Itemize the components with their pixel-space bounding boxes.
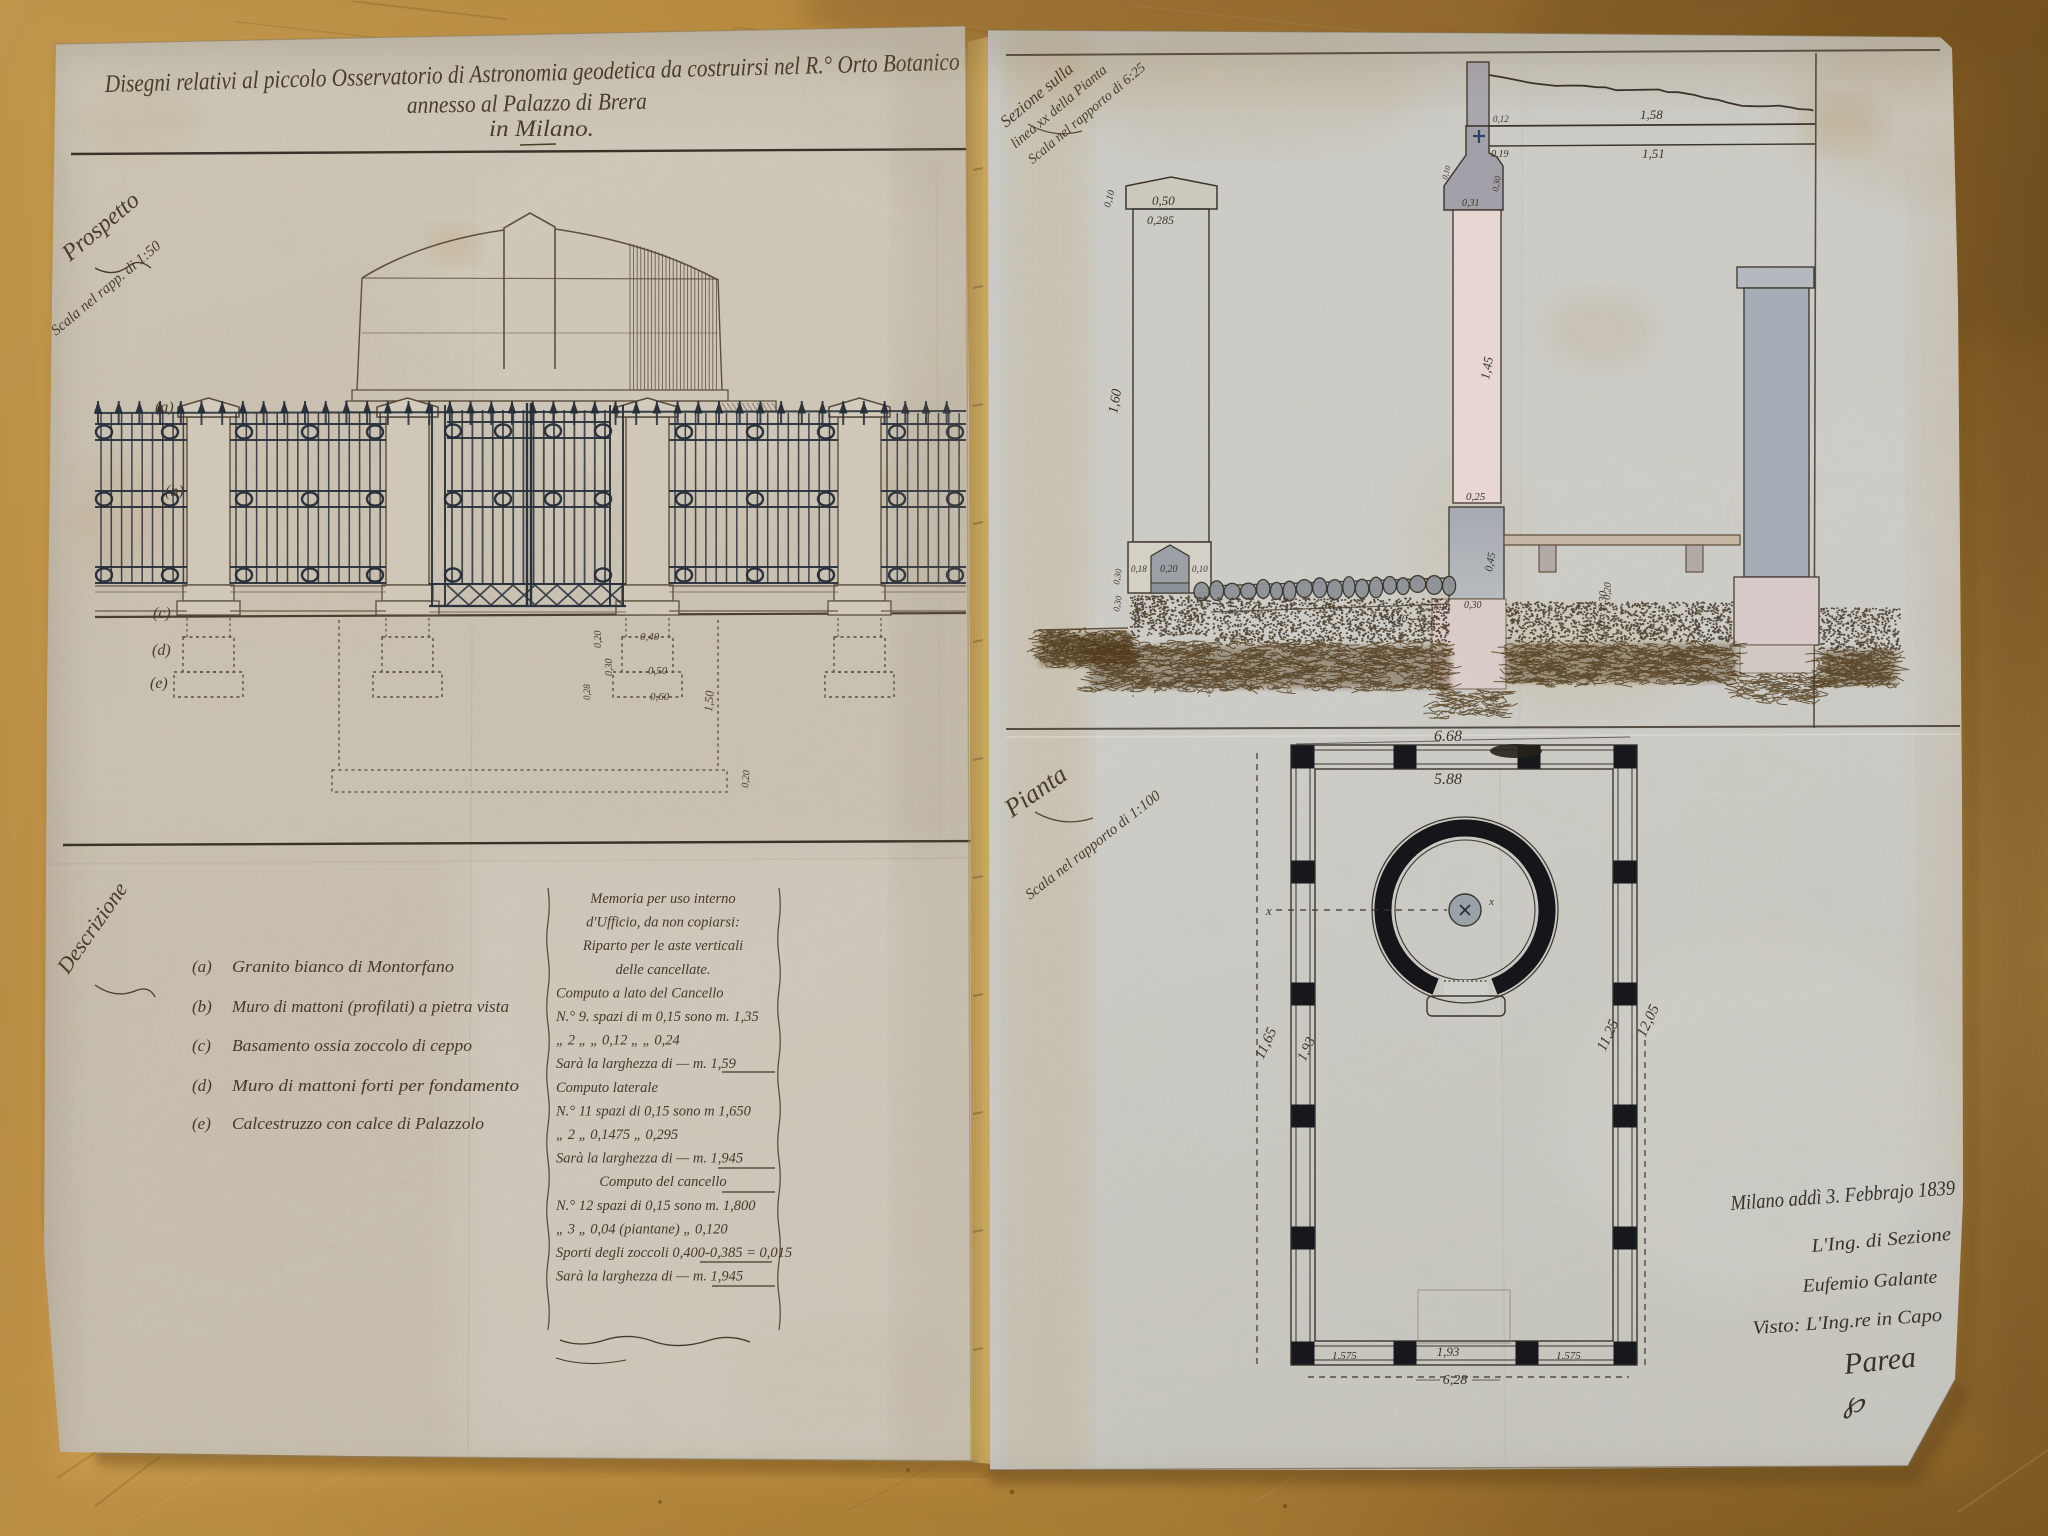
svg-text:x: x	[1265, 903, 1272, 918]
svg-text:Computo laterale: Computo laterale	[556, 1080, 658, 1096]
svg-text:1.575: 1.575	[1332, 1350, 1357, 1362]
svg-text:0,19: 0,19	[1491, 149, 1509, 160]
svg-text:6.68: 6.68	[1434, 728, 1462, 745]
svg-text:0,18: 0,18	[1131, 564, 1147, 574]
svg-text:d'Ufficio, da non copiarsi:: d'Ufficio, da non copiarsi:	[586, 915, 740, 931]
svg-text:x: x	[1488, 896, 1494, 908]
svg-text:(b): (b)	[192, 997, 212, 1016]
svg-text:N.° 11 spazi di 0,15 sono m 1,: N.° 11 spazi di 0,15 sono m 1,650	[555, 1103, 752, 1119]
svg-text:Basamento ossia zoccolo di cep: Basamento ossia zoccolo di ceppo	[232, 1036, 472, 1055]
svg-text:0,28: 0,28	[582, 684, 592, 700]
svg-text:0,20: 0,20	[1602, 582, 1614, 600]
svg-text:(b): (b)	[165, 483, 184, 500]
svg-text:0,60: 0,60	[650, 691, 670, 703]
svg-text:(d): (d)	[192, 1076, 212, 1095]
svg-text:Sarà la larghezza di — m. 1,94: Sarà la larghezza di — m. 1,945	[556, 1151, 743, 1167]
svg-text:(a): (a)	[192, 957, 212, 976]
svg-text:1,50: 1,50	[701, 690, 717, 712]
svg-text:(e): (e)	[192, 1114, 211, 1133]
svg-text:N.° 9. spazi di m 0,15 sono m.: N.° 9. spazi di m 0,15 sono m. 1,35	[555, 1009, 759, 1025]
svg-text:Muro di mattoni (profilati) a: Muro di mattoni (profilati) a pietra vis…	[231, 997, 509, 1016]
svg-text:0,30: 0,30	[604, 659, 615, 677]
svg-text:0,31: 0,31	[1462, 198, 1480, 209]
svg-text:1.575: 1.575	[1556, 1350, 1581, 1362]
svg-text:„ 3 „ 0,04 (piantane) „ 0,1: „ 3 „ 0,04 (piantane) „ 0,120	[556, 1221, 728, 1237]
svg-text:5.88: 5.88	[1434, 771, 1462, 788]
svg-text:Riparto per le aste verticali: Riparto per le aste verticali	[582, 938, 743, 954]
svg-text:(c): (c)	[192, 1036, 211, 1055]
svg-text:(c): (c)	[153, 605, 171, 622]
svg-text:Muro di mattoni forti per fond: Muro di mattoni forti per fondamento	[231, 1076, 519, 1095]
svg-text:„ 2 „ 0,1475 „ 0,295: „ 2 „ 0,1475 „ 0,295	[556, 1127, 678, 1143]
svg-text:Computo a lato del Cancello: Computo a lato del Cancello	[556, 985, 724, 1001]
svg-text:0,20: 0,20	[740, 770, 752, 788]
svg-text:1,58: 1,58	[1640, 107, 1663, 122]
svg-text:0,20: 0,20	[1160, 564, 1178, 575]
svg-text:Calcestruzzo con calce di Pala: Calcestruzzo con calce di Palazzolo	[232, 1114, 484, 1133]
svg-text:Memoria per uso interno: Memoria per uso interno	[589, 891, 735, 907]
svg-text:„ 2 „ „ 0,12 „ „ 0,24: „ 2 „ „ 0,12 „ „ 0,24	[556, 1033, 680, 1049]
svg-text:1,93: 1,93	[1437, 1344, 1460, 1359]
svg-text:0,12: 0,12	[1493, 114, 1509, 124]
svg-text:0,50: 0,50	[1152, 193, 1175, 208]
svg-text:0,40: 0,40	[640, 631, 660, 643]
svg-text:(d): (d)	[152, 642, 171, 659]
svg-text:0,10: 0,10	[1192, 564, 1208, 574]
svg-text:0,25: 0,25	[1466, 491, 1486, 503]
svg-text:0,285: 0,285	[1147, 213, 1174, 227]
svg-text:Sarà la larghezza di — m. 1,94: Sarà la larghezza di — m. 1,945	[556, 1269, 743, 1285]
svg-text:delle cancellate.: delle cancellate.	[615, 962, 710, 978]
svg-text:0,30: 0,30	[1464, 600, 1482, 611]
svg-text:Sporti degli zoccoli 0,400-0,3: Sporti degli zoccoli 0,400-0,385 = 0,015	[556, 1245, 792, 1261]
svg-text:0,20: 0,20	[593, 631, 604, 649]
svg-text:Computo del cancello: Computo del cancello	[599, 1174, 726, 1190]
svg-text:annesso al Palazzo di Brera: annesso al Palazzo di Brera	[407, 89, 647, 119]
svg-text:Sarà la larghezza di — m. 1,59: Sarà la larghezza di — m. 1,59	[556, 1056, 737, 1072]
svg-text:Granito bianco di Montorfano: Granito bianco di Montorfano	[232, 957, 454, 976]
svg-text:6,28: 6,28	[1443, 1373, 1468, 1388]
svg-text:0,50: 0,50	[648, 665, 668, 677]
svg-text:1,51: 1,51	[1642, 146, 1665, 161]
svg-text:(e): (e)	[150, 675, 168, 692]
svg-text:(a): (a)	[155, 399, 174, 416]
svg-text:℘: ℘	[1843, 1386, 1866, 1419]
svg-text:N.° 12 spazi di 0,15 sono m. 1: N.° 12 spazi di 0,15 sono m. 1,800	[555, 1198, 756, 1214]
svg-text:in Milano.: in Milano.	[489, 116, 594, 141]
